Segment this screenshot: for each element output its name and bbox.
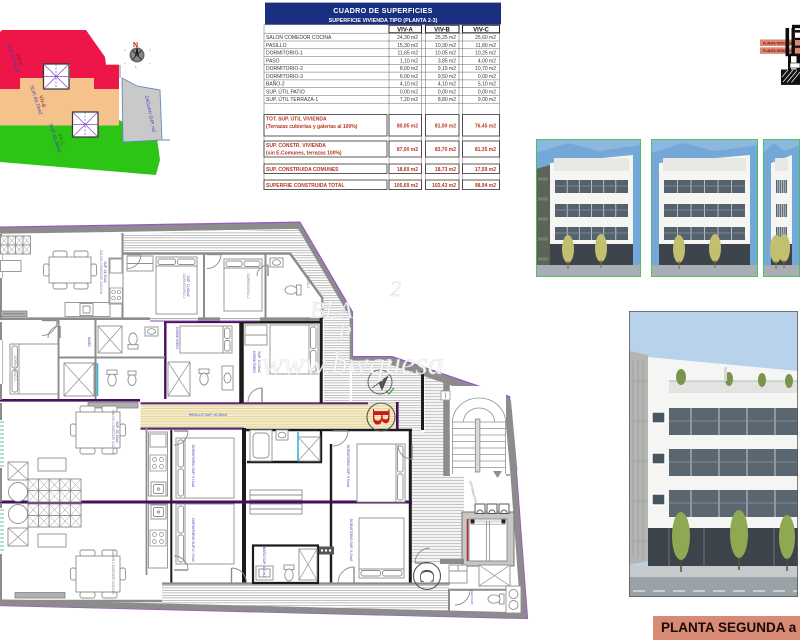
svg-text:10,25 m2: 10,25 m2 xyxy=(475,51,496,57)
svg-text:DORMITORIO: DORMITORIO xyxy=(252,351,256,373)
svg-text:10,30 m2: 10,30 m2 xyxy=(435,43,456,49)
svg-text:76,45 m2: 76,45 m2 xyxy=(475,123,496,129)
svg-text:9,50 m2: 9,50 m2 xyxy=(438,74,456,80)
svg-text:N: N xyxy=(133,42,138,49)
svg-text:6,00 m2: 6,00 m2 xyxy=(400,74,418,80)
svg-text:98,94 m2: 98,94 m2 xyxy=(475,183,496,189)
svg-text:11,80 m2: 11,80 m2 xyxy=(476,43,497,49)
svg-text:VIV-C: VIV-C xyxy=(473,27,489,33)
svg-text:BAÑO-2: BAÑO-2 xyxy=(266,81,285,88)
svg-text:+: + xyxy=(149,61,151,65)
svg-text:87,00 m2: 87,00 m2 xyxy=(397,147,418,153)
svg-text:5,10 m2: 5,10 m2 xyxy=(478,82,496,88)
svg-text:102,43 m2: 102,43 m2 xyxy=(432,183,456,189)
svg-text:BAÑO: BAÑO xyxy=(87,337,92,347)
svg-text:SUP. CONSTR. VIVIENDA: SUP. CONSTR. VIVIENDA xyxy=(266,143,326,149)
svg-text:DORMITORIO SUP. 9,50m2: DORMITORIO SUP. 9,50m2 xyxy=(346,445,350,488)
svg-text:4,00 m2: 4,00 m2 xyxy=(478,58,496,64)
svg-text:15,30 m2: 15,30 m2 xyxy=(397,43,418,49)
svg-text:18,73 m2: 18,73 m2 xyxy=(435,167,456,173)
svg-text:SUP. 10,05m2: SUP. 10,05m2 xyxy=(257,351,261,373)
svg-text:80,05 m2: 80,05 m2 xyxy=(397,123,418,129)
svg-text:SUP. CONSTRUIDA COMUNES: SUP. CONSTRUIDA COMUNES xyxy=(266,167,339,173)
svg-text:ASEO SUP.: ASEO SUP. xyxy=(470,589,474,605)
svg-text:DORMITORIO-2: DORMITORIO-2 xyxy=(246,274,250,299)
svg-text:SUP. ÚTIL TERRAZA-1: SUP. ÚTIL TERRAZA-1 xyxy=(266,96,318,103)
svg-text:s: s xyxy=(135,65,137,69)
svg-text:SUP. ÚTIL PATIO: SUP. ÚTIL PATIO xyxy=(266,88,305,95)
svg-text:DORMITORIO SUP.10,70m2: DORMITORIO SUP.10,70m2 xyxy=(191,518,195,562)
svg-text:+: + xyxy=(124,61,126,65)
svg-text:9,15 m2: 9,15 m2 xyxy=(438,66,456,72)
svg-text:www.bwquesa: www.bwquesa xyxy=(262,345,444,381)
svg-text:11,65 m2: 11,65 m2 xyxy=(398,51,419,57)
svg-text:DORMITORIO-1: DORMITORIO-1 xyxy=(266,51,303,57)
svg-text:B: B xyxy=(367,409,394,426)
svg-text:P: P xyxy=(337,320,351,345)
svg-text:SALON COMEDOR COCINA: SALON COMEDOR COCINA xyxy=(111,550,115,595)
svg-text:4,10 m2: 4,10 m2 xyxy=(400,82,418,88)
svg-text:18,69 m2: 18,69 m2 xyxy=(397,167,418,173)
svg-text:TOT. SUP. ÚTIL VIVIENDA: TOT. SUP. ÚTIL VIVIENDA xyxy=(266,116,327,123)
svg-text:25,60 m2: 25,60 m2 xyxy=(475,35,496,41)
svg-text:10,70 m2: 10,70 m2 xyxy=(475,66,496,72)
svg-text:0,00 m2: 0,00 m2 xyxy=(478,74,496,80)
svg-text:SALON COMEDOR COCINA: SALON COMEDOR COCINA xyxy=(99,250,103,295)
svg-text:8,00 m2: 8,00 m2 xyxy=(400,66,418,72)
svg-text:0,00 m2: 0,00 m2 xyxy=(438,89,456,95)
svg-text:17,59 m2: 17,59 m2 xyxy=(475,167,496,173)
svg-text:DORMITORIO-3: DORMITORIO-3 xyxy=(266,74,303,80)
svg-text:SUPERFIIE CONSTRUIDA TOTAL: SUPERFIIE CONSTRUIDA TOTAL xyxy=(266,183,345,189)
svg-text:81,00 m2: 81,00 m2 xyxy=(435,123,456,129)
svg-text:DORMITORIO-1: DORMITORIO-1 xyxy=(182,274,186,299)
svg-text:o: o xyxy=(149,48,151,52)
svg-text:PASO: PASO xyxy=(266,58,280,64)
svg-text:(sin E.Comunes, terrazas 100%): (sin E.Comunes, terrazas 100%) xyxy=(266,150,342,156)
svg-text:4,10 m2: 4,10 m2 xyxy=(438,82,456,88)
svg-text:3,85 m2: 3,85 m2 xyxy=(438,58,456,64)
svg-text:SUP. 24,30m2: SUP. 24,30m2 xyxy=(103,261,107,283)
svg-text:(Terrazas cubiertas y galerías: (Terrazas cubiertas y galerías al 100%) xyxy=(266,124,358,130)
svg-text:8,80 m2: 8,80 m2 xyxy=(438,97,456,103)
svg-text:9,00 m2: 9,00 m2 xyxy=(478,97,496,103)
svg-text:CUADRO DE SUPERFICIES: CUADRO DE SUPERFICIES xyxy=(333,6,433,15)
svg-text:PASILLO: PASILLO xyxy=(266,43,287,49)
svg-text:VIV-B: VIV-B xyxy=(434,27,450,33)
svg-text:BAÑO-2: BAÑO-2 xyxy=(306,276,311,289)
svg-text:C: C xyxy=(415,569,439,583)
svg-text:SALON COMEDOR COCINA: SALON COMEDOR COCINA xyxy=(111,410,115,455)
svg-text:0,00 m2: 0,00 m2 xyxy=(478,89,496,95)
svg-text:DORMITORIO SUP. 9,00m2: DORMITORIO SUP. 9,00m2 xyxy=(349,519,353,562)
svg-text:o: o xyxy=(124,48,126,52)
svg-text:DORMITORIO: DORMITORIO xyxy=(175,327,179,349)
svg-text:1,10 m2: 1,10 m2 xyxy=(400,58,418,64)
svg-text:81,35 m2: 81,35 m2 xyxy=(475,147,496,153)
svg-text:7,20 m2: 7,20 m2 xyxy=(400,97,418,103)
svg-text:BAÑO SUP. 4,10m2: BAÑO SUP. 4,10m2 xyxy=(262,547,267,577)
svg-text:DORMITORIO SUP. 9,15m2: DORMITORIO SUP. 9,15m2 xyxy=(191,445,195,488)
svg-text:DORMITORIO-2: DORMITORIO-2 xyxy=(266,66,303,72)
svg-text:0,00 m2: 0,00 m2 xyxy=(400,89,418,95)
svg-text:SUP. 25,25m2: SUP. 25,25m2 xyxy=(115,421,119,443)
svg-text:SUPERFICIE VIVIENDA TIPO (PLA: SUPERFICIE VIVIENDA TIPO (PLANTA 2-3) xyxy=(329,18,438,24)
svg-text:DORMITORIO-3: DORMITORIO-3 xyxy=(13,356,17,381)
svg-text:24,30 m2: 24,30 m2 xyxy=(397,35,418,41)
svg-text:105,69 m2: 105,69 m2 xyxy=(394,183,418,189)
svg-text:83,70 m2: 83,70 m2 xyxy=(435,147,456,153)
svg-text:PASILLO SUP. 10,30m2: PASILLO SUP. 10,30m2 xyxy=(189,413,228,417)
svg-text:10,05 m2: 10,05 m2 xyxy=(435,51,456,57)
svg-text:2: 2 xyxy=(390,276,401,301)
svg-text:SUP. 11,65m2: SUP. 11,65m2 xyxy=(186,275,190,296)
svg-text:25,25 m2: 25,25 m2 xyxy=(435,35,456,41)
svg-text:VIV-A: VIV-A xyxy=(397,27,413,33)
svg-text:SALON COMEDOR COCINA: SALON COMEDOR COCINA xyxy=(266,35,332,41)
